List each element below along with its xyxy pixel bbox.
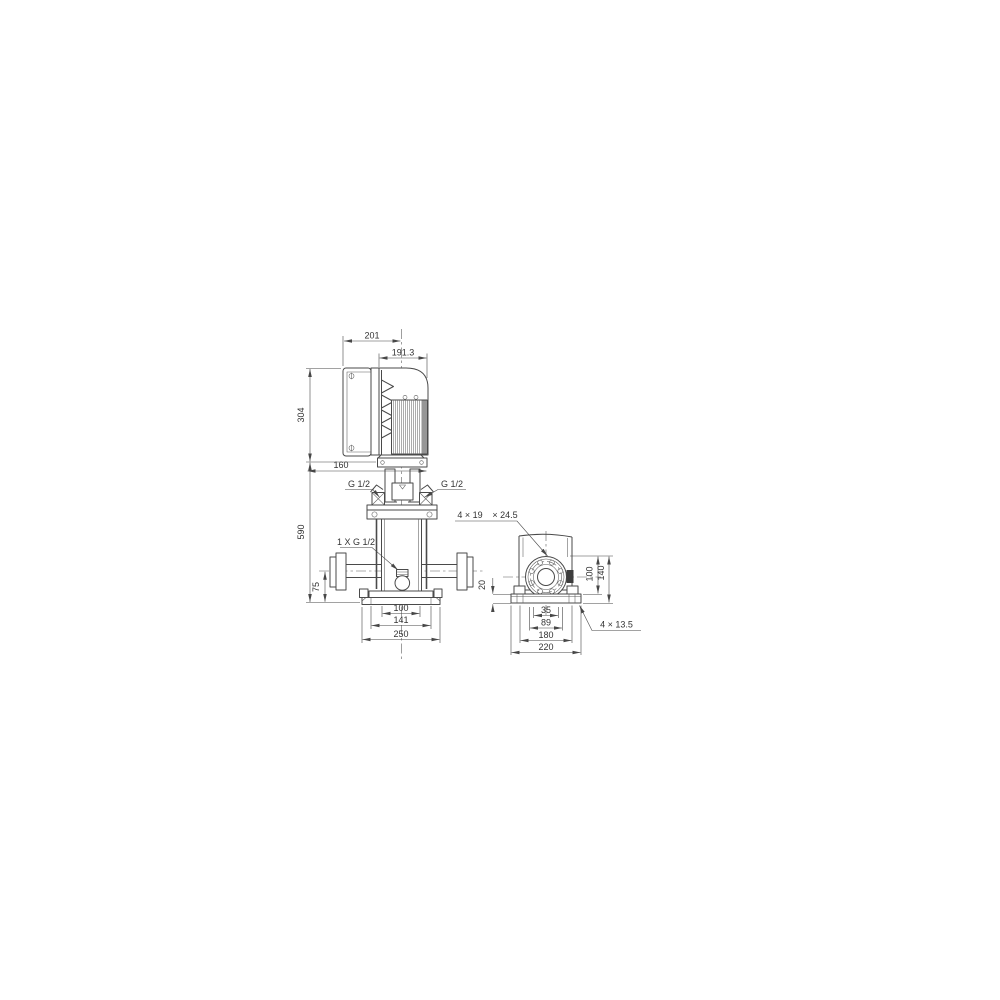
- plug-right: [420, 485, 434, 505]
- dim-100-side: 100: [585, 566, 595, 581]
- dim-304: 304: [296, 407, 306, 422]
- port-flange-right: [422, 553, 474, 590]
- base-plate: [511, 594, 581, 603]
- dim-160: 160: [333, 460, 348, 470]
- label-drain: 1 X G 1/2: [337, 537, 375, 547]
- dim-201: 201: [364, 331, 379, 341]
- dim-180: 180: [538, 630, 553, 640]
- side-view: 4 × 19 × 24.5 20 100 140 35 89 180 220 4…: [455, 510, 641, 655]
- port-flange-left: [330, 553, 382, 590]
- motor-stool: [378, 455, 428, 467]
- dim-89: 89: [541, 618, 551, 628]
- front-view: 201 191.3 304 160 590 75 G 1/2 G 1/2 1 X…: [296, 329, 484, 659]
- stand-foot-left: [514, 586, 525, 594]
- dim-20: 20: [477, 580, 487, 590]
- label-flange-holes-2: × 24.5: [492, 510, 517, 520]
- dim-220: 220: [538, 642, 553, 652]
- label-flange-holes-1: 4 × 19: [457, 510, 482, 520]
- heat-sink-block: [392, 395, 428, 454]
- port-flange-face: [526, 557, 574, 598]
- dim-75: 75: [311, 582, 321, 592]
- drain-plug: [395, 570, 410, 591]
- dim-191-3: 191.3: [392, 348, 415, 358]
- pump-head-flange: [367, 505, 437, 519]
- label-port-left: G 1/2: [348, 479, 370, 489]
- label-base-holes: 4 × 13.5: [600, 620, 633, 630]
- dim-100-front: 100: [393, 603, 408, 613]
- coupling-guard: [383, 469, 422, 502]
- dim-250: 250: [393, 629, 408, 639]
- stand-foot-right: [567, 586, 578, 594]
- leader-flange-holes: [455, 521, 548, 556]
- label-port-right: G 1/2: [441, 479, 463, 489]
- control-box: [343, 368, 371, 456]
- pump-dimensional-drawing: 201 191.3 304 160 590 75 G 1/2 G 1/2 1 X…: [0, 0, 1000, 1000]
- drawing-svg: 201 191.3 304 160 590 75 G 1/2 G 1/2 1 X…: [0, 0, 1000, 1000]
- dim-590: 590: [296, 524, 306, 539]
- dim-35: 35: [541, 605, 551, 615]
- flange-clamp-tab: [567, 570, 574, 583]
- dim-140: 140: [596, 565, 606, 580]
- motor-body: [371, 368, 428, 455]
- dim-141: 141: [393, 615, 408, 625]
